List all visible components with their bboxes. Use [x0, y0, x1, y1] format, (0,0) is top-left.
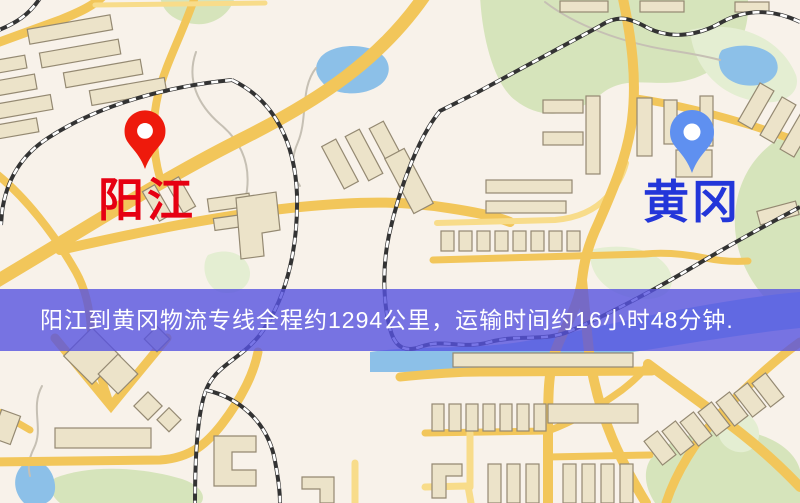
route-info-text: 阳江到黄冈物流专线全程约1294公里，运输时间约16小时48分钟.	[40, 309, 734, 332]
route-info-banner: 阳江到黄冈物流专线全程约1294公里，运输时间约16小时48分钟.	[0, 289, 800, 351]
logistics-route-map: 阳江 黄冈 阳江到黄冈物流专线全程约1294公里，运输时间约16小时48分钟.	[0, 0, 800, 503]
map-canvas[interactable]: 阳江 黄冈	[0, 0, 800, 503]
pin-hole	[137, 123, 153, 139]
origin-city-label: 阳江	[98, 175, 196, 226]
pin-hole	[684, 124, 701, 141]
destination-city-label: 黄冈	[643, 177, 741, 228]
